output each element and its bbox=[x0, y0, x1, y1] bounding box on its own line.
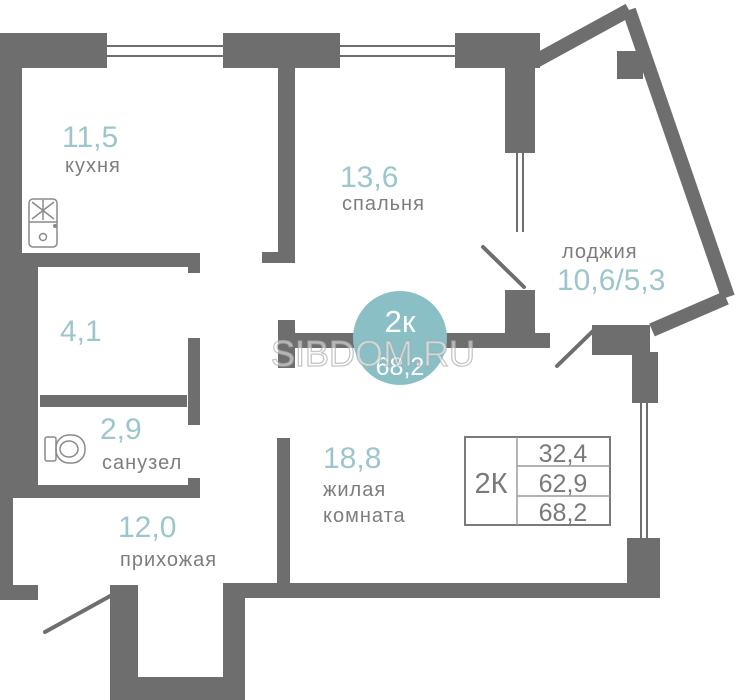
loggia-area: 10,6/5,3 bbox=[557, 264, 665, 297]
living-room-window bbox=[632, 403, 656, 538]
summary-row-2: 62,9 bbox=[539, 470, 588, 498]
kitchen-label: 11,5 кухня bbox=[62, 121, 121, 177]
living-room-door-swing bbox=[557, 330, 594, 366]
summary-row-3: 68,2 bbox=[539, 499, 588, 527]
summary-row-1: 32,4 bbox=[539, 440, 588, 468]
area-summary-table: 2К 32,4 62,9 68,2 bbox=[465, 437, 610, 527]
balcony-door-swing bbox=[483, 247, 524, 287]
bedroom-window bbox=[340, 33, 455, 68]
wc-label: 2,9 санузел bbox=[100, 413, 182, 474]
floor-plan: 11,5 кухня 13,6 спальня лоджия 10,6/5,3 … bbox=[0, 0, 740, 700]
wc-area: 2,9 bbox=[100, 413, 142, 446]
hallway-label: 12,0 прихожая bbox=[118, 511, 217, 571]
living-room-area: 18,8 bbox=[323, 442, 381, 475]
bedroom-label: 13,6 спальня bbox=[340, 161, 425, 215]
bedroom-area: 13,6 bbox=[340, 161, 398, 194]
summary-type: 2К bbox=[474, 468, 507, 500]
living-room-label: 18,8 жилая комната bbox=[323, 442, 406, 527]
wc-name: санузел bbox=[102, 452, 182, 474]
loggia-name: лоджия bbox=[562, 241, 638, 263]
living-room-name-line2: комната bbox=[323, 505, 406, 527]
kitchen-window bbox=[107, 33, 223, 68]
kitchen-name: кухня bbox=[65, 155, 121, 177]
hallway-name: прихожая bbox=[120, 549, 217, 571]
stove-icon bbox=[29, 199, 57, 247]
bedroom-name: спальня bbox=[342, 193, 425, 215]
loggia-label: лоджия 10,6/5,3 bbox=[557, 241, 665, 297]
hallway-area: 12,0 bbox=[118, 511, 176, 544]
living-room-name-line1: жилая bbox=[323, 479, 386, 501]
kitchen-area: 11,5 bbox=[62, 121, 118, 154]
watermark: SIBDOM.RU bbox=[271, 333, 475, 374]
bathroom-area: 4,1 bbox=[60, 315, 102, 348]
entrance-door-swing bbox=[45, 595, 112, 632]
toilet-icon bbox=[45, 435, 85, 463]
balcony-door-window bbox=[507, 153, 533, 232]
